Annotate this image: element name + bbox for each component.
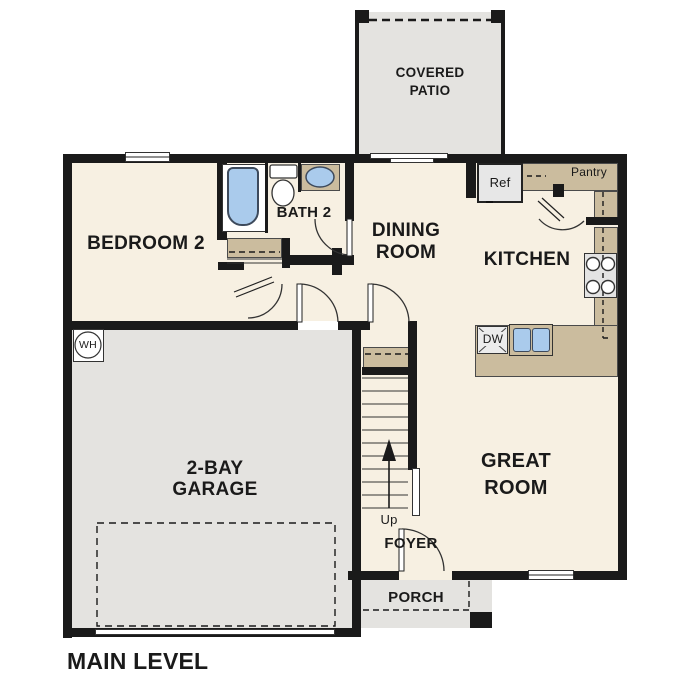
stair-treads [362,378,408,508]
pantry-door-leaf [538,198,564,221]
kitchen-label: KITCHEN [484,249,571,271]
up-arrow [382,439,396,508]
dining-room-label: DINING ROOM [372,220,440,264]
bath-sink-icon [306,167,334,187]
pantry-door-arc [539,219,584,230]
coat-closet-door-leaf [368,284,373,322]
plan-title: MAIN LEVEL [67,648,208,675]
bath2-door-leaf [347,219,352,256]
bath2-door-arc [315,219,351,255]
up-label: Up [380,512,397,527]
bedroom2-door-leaf [234,277,274,297]
garage-entry-door-leaf [297,284,302,322]
foyer-label: FOYER [384,535,437,552]
dw-label: DW [482,332,504,346]
great-room-label: GREAT ROOM [481,448,551,502]
ref-label: Ref [490,175,511,190]
bedroom2-door-arc [248,284,282,318]
floorplan-canvas: COVERED PATIO BEDROOM 2 BATH 2 DINING RO… [0,0,687,687]
garage-apron-dashed [97,523,335,626]
annotations-layer [0,0,687,687]
garage-door-arc [300,284,338,322]
toilet-icon [270,165,297,206]
bedroom2-label: BEDROOM 2 [87,233,205,255]
covered-patio-label: COVERED PATIO [396,64,465,100]
closet-track-lines [227,259,282,263]
pantry-label: Pantry [571,165,607,179]
coat-closet-door-arc [371,284,409,322]
stove-burners [587,258,615,294]
porch-label: PORCH [388,589,444,606]
wh-label: WH [79,339,97,351]
garage-label: 2-BAY GARAGE [172,458,257,500]
bath2-label: BATH 2 [277,204,332,221]
